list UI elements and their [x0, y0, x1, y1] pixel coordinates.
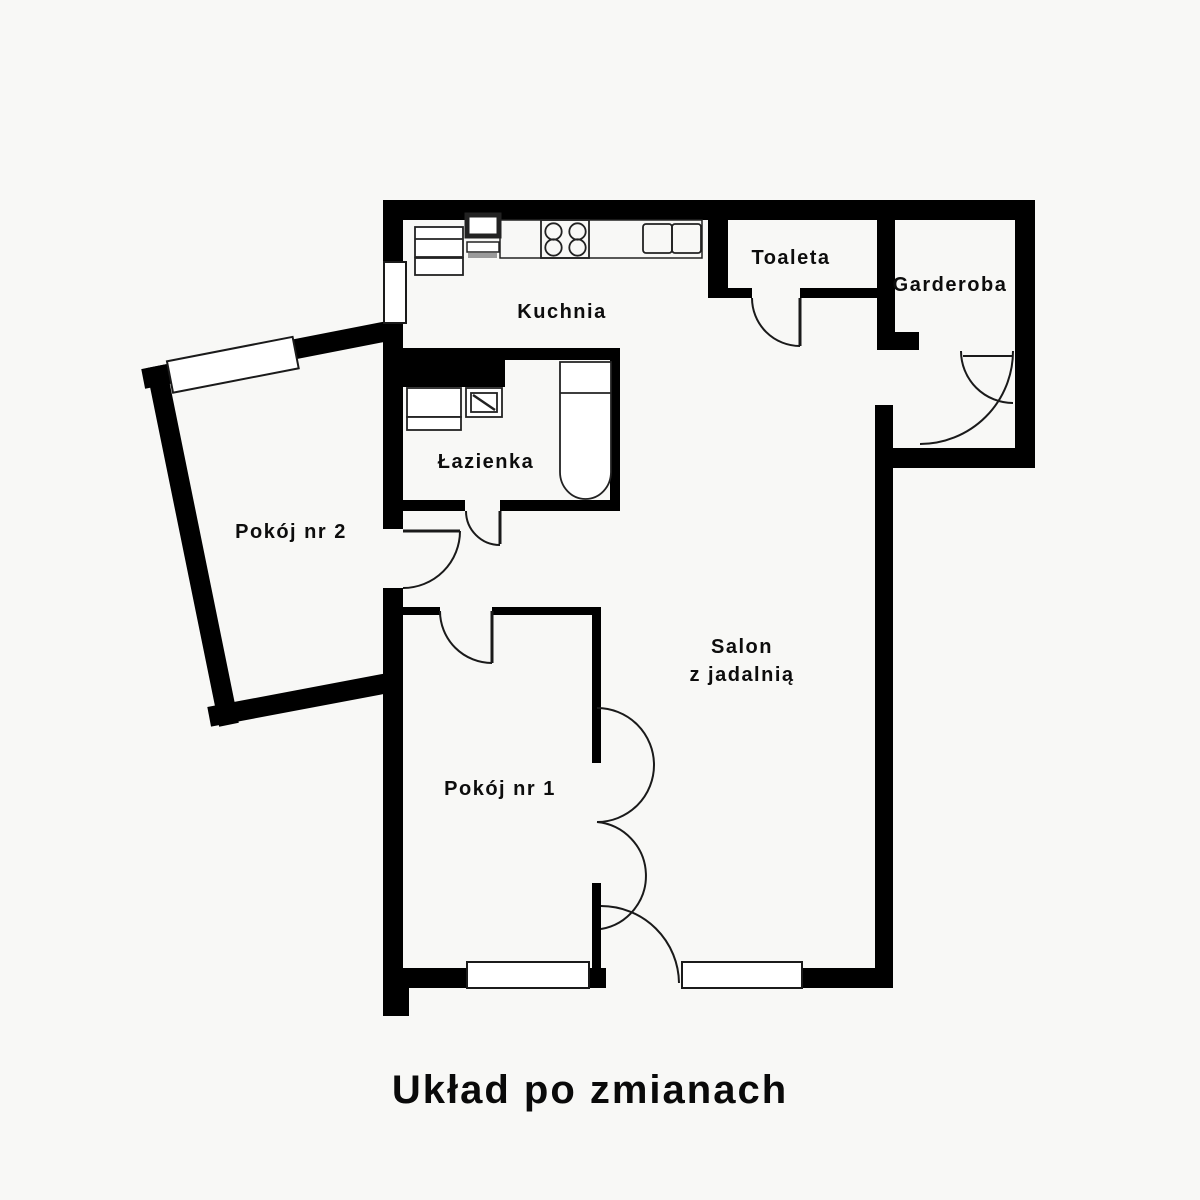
room-label-pokoj2: Pokój nr 2 [235, 521, 347, 543]
wall-toilet-bottom-left [708, 288, 752, 298]
wall-toilet-bottom-right [800, 288, 878, 298]
wall-bottom-right [800, 968, 893, 988]
wall-niche-bottom [893, 448, 1035, 468]
window-left-wall [384, 262, 406, 323]
wall-room1-right-stub [592, 883, 601, 968]
wall-bath-bottom-right [500, 500, 620, 511]
kitchen-cabinet-icon [467, 215, 499, 258]
wall-room1-right [592, 607, 601, 763]
wall-left-middle [383, 322, 403, 529]
wall-salon-right [875, 405, 893, 988]
wall-kitchen-toilet-divider [708, 220, 728, 290]
wall-bath-top-thin [505, 348, 618, 360]
room-label-toaleta: Toaleta [751, 247, 830, 269]
room-label-salon-line2: z jadalnią [689, 664, 794, 686]
bathtub-icon [560, 362, 611, 499]
room-label-garderoba: Garderoba [893, 274, 1008, 296]
wall-wardrobe-bottom [877, 332, 919, 350]
room-label-pokoj1: Pokój nr 1 [444, 778, 556, 800]
room-label-kuchnia: Kuchnia [517, 301, 606, 323]
fridge-icon [415, 227, 463, 275]
wall-room1-top-left [403, 607, 440, 615]
room-label-lazienka: Łazienka [438, 451, 534, 473]
wall-bottom-left [383, 968, 469, 988]
plan-title: Układ po zmianach [392, 1068, 788, 1112]
wall-left-lower [383, 588, 403, 968]
wall-right-outer [1015, 220, 1035, 468]
room-label-salon-line1: Salon [711, 636, 773, 658]
wall-bath-top-thick [403, 348, 505, 387]
wall-left-upper [383, 220, 403, 263]
floor-plan-page: Kuchnia Toaleta Garderoba Łazienka Pokój… [0, 0, 1200, 1200]
window-bottom-salon [682, 962, 802, 988]
floor-plan-svg: Kuchnia Toaleta Garderoba Łazienka Pokój… [0, 0, 1200, 1200]
washing-machine-icon [407, 388, 461, 430]
plan-background [0, 0, 1200, 1200]
wall-room1-top-right [492, 607, 598, 615]
bathroom-sink-icon [466, 388, 502, 417]
wall-bottom-middle [588, 968, 606, 988]
wall-bath-bottom-left [403, 500, 465, 511]
window-bottom-room1 [467, 962, 589, 988]
